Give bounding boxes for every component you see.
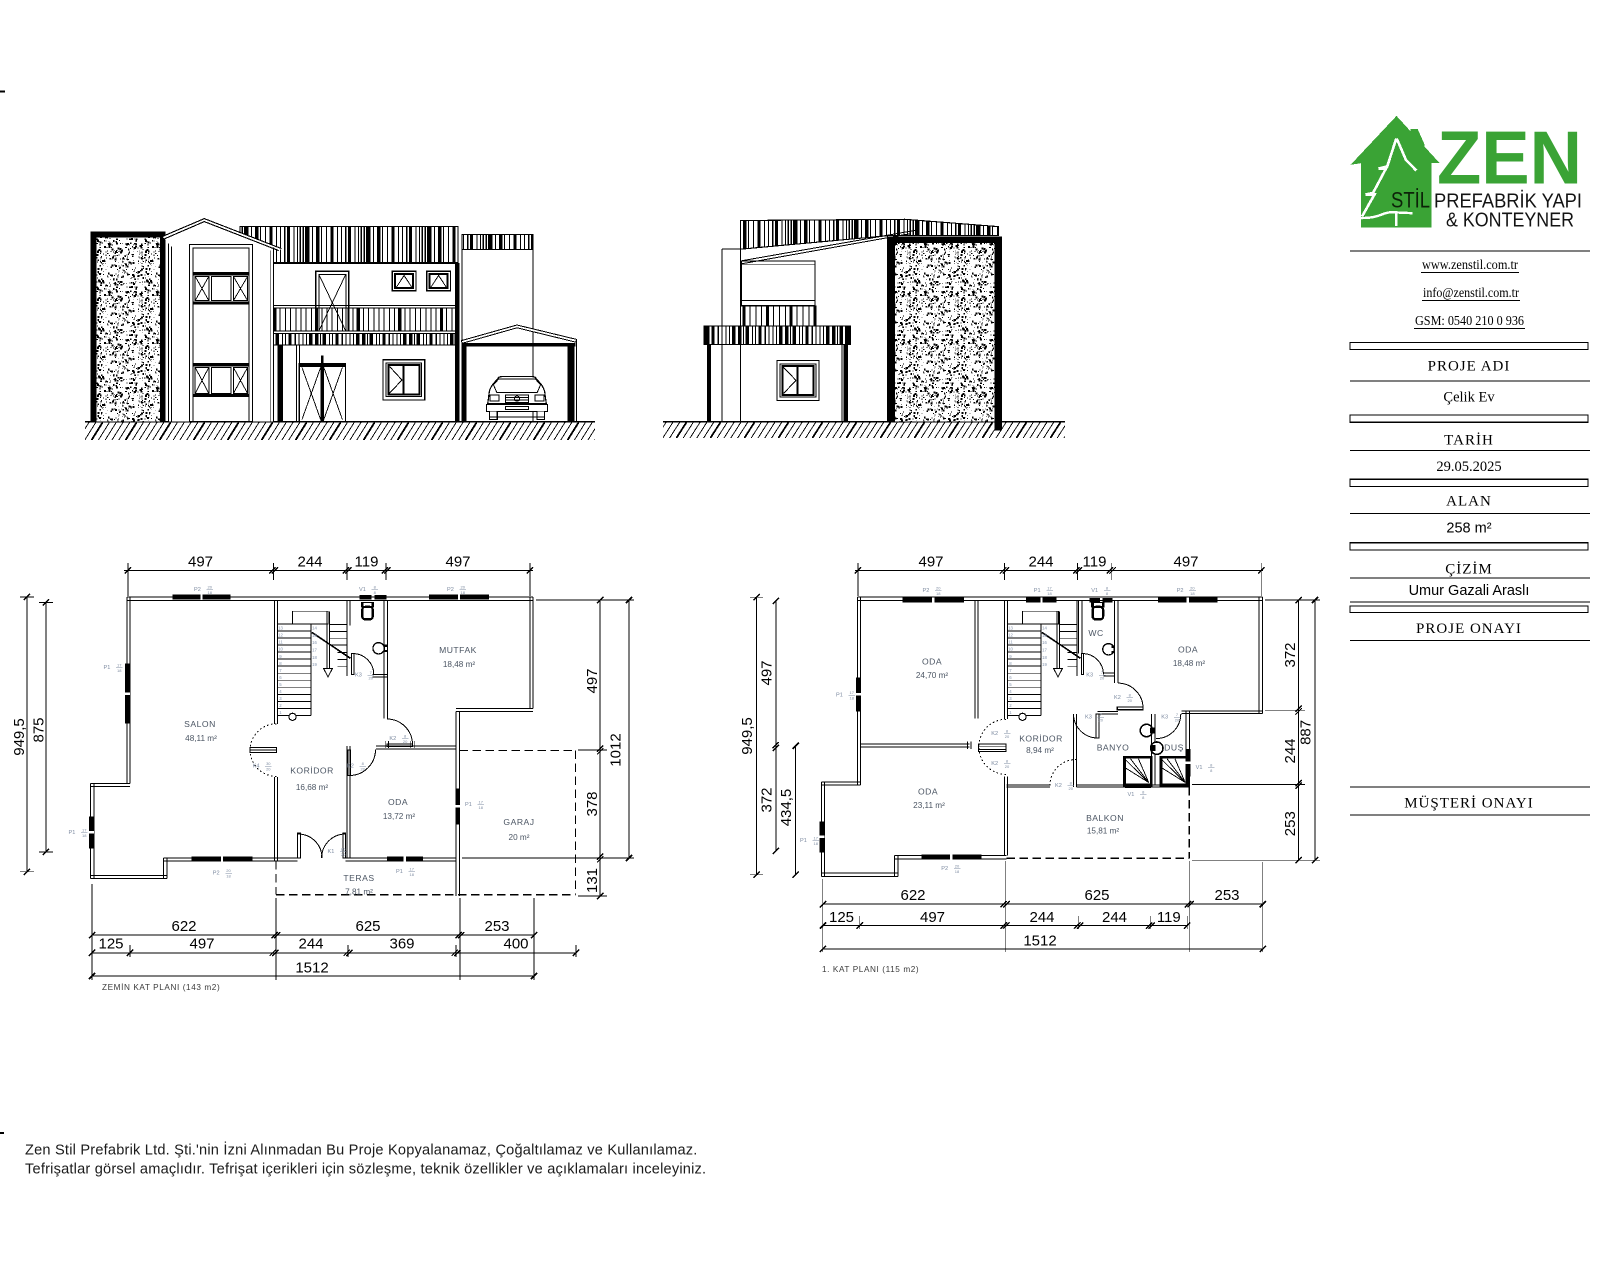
svg-text:119: 119 [1157, 909, 1181, 926]
svg-text:497: 497 [188, 554, 213, 571]
svg-text:STİL: STİL [1391, 188, 1430, 213]
svg-text:20: 20 [936, 586, 941, 591]
svg-text:497: 497 [920, 909, 945, 926]
svg-text:BALKON: BALKON [1086, 813, 1124, 823]
svg-text:17: 17 [849, 690, 854, 695]
svg-text:15: 15 [1042, 633, 1047, 638]
svg-text:17: 17 [1042, 648, 1047, 653]
svg-text:17: 17 [478, 800, 483, 805]
svg-text:WC: WC [1088, 628, 1103, 638]
svg-text:14: 14 [1042, 626, 1047, 631]
svg-text:20: 20 [266, 767, 271, 772]
svg-text:17: 17 [1047, 586, 1052, 591]
svg-text:GSM: 0540 210 0 936: GSM: 0540 210 0 936 [1415, 314, 1524, 329]
svg-text:3: 3 [1009, 696, 1012, 701]
svg-text:2: 2 [1009, 703, 1012, 708]
svg-text:P1: P1 [69, 830, 76, 836]
svg-text:20: 20 [1098, 718, 1103, 723]
svg-text:DUŞ: DUŞ [1164, 743, 1184, 753]
svg-text:K3: K3 [1085, 715, 1092, 721]
svg-text:P1: P1 [836, 693, 843, 699]
svg-text:1012: 1012 [608, 733, 625, 766]
svg-text:10: 10 [1008, 647, 1013, 652]
svg-text:P2: P2 [447, 587, 454, 593]
svg-text:2: 2 [279, 703, 282, 708]
svg-text:119: 119 [355, 554, 379, 571]
svg-text:7,81 m²: 7,81 m² [345, 888, 373, 897]
svg-text:125: 125 [829, 909, 854, 926]
svg-text:244: 244 [1028, 554, 1053, 571]
svg-text:info@zenstil.com.tr: info@zenstil.com.tr [1423, 286, 1519, 301]
svg-text:20: 20 [1068, 786, 1073, 791]
svg-text:17: 17 [82, 828, 87, 833]
svg-text:20: 20 [368, 676, 373, 681]
svg-text:18: 18 [955, 869, 960, 874]
svg-text:497: 497 [584, 668, 601, 693]
svg-text:8: 8 [279, 661, 282, 666]
svg-text:& KONTEYNER: & KONTEYNER [1446, 210, 1574, 232]
svg-text:18,48 m²: 18,48 m² [1173, 659, 1206, 668]
svg-text:V1: V1 [359, 587, 366, 593]
svg-text:29.05.2025: 29.05.2025 [1436, 459, 1501, 475]
svg-text:6: 6 [279, 675, 282, 680]
svg-text:258 m²: 258 m² [1446, 521, 1491, 537]
svg-text:16: 16 [312, 640, 317, 645]
svg-text:K2: K2 [1114, 695, 1121, 701]
svg-text:K3: K3 [355, 673, 362, 679]
svg-text:7: 7 [1009, 668, 1012, 673]
svg-text:20: 20 [226, 868, 231, 873]
svg-text:5: 5 [1009, 682, 1012, 687]
svg-text:1512: 1512 [295, 960, 328, 977]
svg-text:20: 20 [341, 852, 346, 857]
svg-text:131: 131 [584, 868, 601, 893]
svg-text:7: 7 [279, 668, 282, 673]
svg-text:MUTFAK: MUTFAK [439, 645, 477, 655]
svg-text:20: 20 [955, 864, 960, 869]
svg-text:4: 4 [279, 689, 282, 694]
svg-text:18: 18 [82, 833, 87, 838]
svg-text:8: 8 [1006, 759, 1009, 764]
svg-text:20: 20 [1005, 734, 1010, 739]
svg-text:KORİDOR: KORİDOR [290, 766, 334, 776]
svg-text:253: 253 [1214, 887, 1239, 904]
svg-text:16,68 m²: 16,68 m² [296, 783, 329, 792]
svg-text:P1: P1 [104, 665, 111, 671]
svg-text:5: 5 [279, 682, 282, 687]
svg-text:8: 8 [362, 761, 365, 766]
svg-text:13: 13 [278, 626, 283, 631]
svg-text:20: 20 [1175, 718, 1180, 723]
svg-text:372: 372 [758, 787, 775, 812]
svg-text:12: 12 [1008, 633, 1013, 638]
svg-text:1512: 1512 [1023, 933, 1056, 950]
svg-text:20: 20 [403, 739, 408, 744]
svg-text:TERAS: TERAS [343, 873, 374, 883]
svg-text:19: 19 [312, 662, 317, 667]
svg-text:P2: P2 [923, 588, 930, 594]
svg-text:11: 11 [1008, 640, 1013, 645]
svg-text:P2: P2 [1177, 588, 1184, 594]
svg-text:18: 18 [813, 841, 818, 846]
svg-text:4: 4 [1009, 689, 1012, 694]
svg-text:253: 253 [1282, 811, 1299, 836]
svg-text:ZEN: ZEN [1437, 116, 1582, 200]
svg-text:8: 8 [1142, 790, 1145, 795]
svg-text:625: 625 [1084, 887, 1109, 904]
svg-text:6: 6 [1009, 675, 1012, 680]
svg-text:125: 125 [98, 936, 123, 953]
svg-text:K1: K1 [328, 849, 335, 855]
svg-text:Zen Stil Prefabrik Ltd. Şti.'n: Zen Stil Prefabrik Ltd. Şti.'nin İzni Al… [25, 1141, 698, 1159]
svg-text:20 m²: 20 m² [509, 833, 530, 842]
svg-text:8: 8 [1210, 763, 1213, 768]
svg-text:244: 244 [1102, 909, 1127, 926]
svg-text:1: 1 [1009, 710, 1012, 715]
svg-text:3: 3 [279, 696, 282, 701]
svg-text:11: 11 [278, 640, 283, 645]
svg-text:434,5: 434,5 [778, 789, 795, 827]
svg-text:8: 8 [1006, 729, 1009, 734]
svg-text:Tefrişatlar görsel amaçlıdır.: Tefrişatlar görsel amaçlıdır. Tefrişat i… [25, 1162, 706, 1178]
svg-text:875: 875 [30, 717, 47, 742]
svg-text:244: 244 [297, 554, 322, 571]
svg-text:378: 378 [584, 791, 601, 816]
svg-text:K2: K2 [347, 764, 354, 770]
svg-text:K3: K3 [1161, 715, 1168, 721]
svg-text:www.zenstil.com.tr: www.zenstil.com.tr [1422, 258, 1518, 273]
svg-text:8: 8 [1106, 586, 1109, 591]
svg-text:20: 20 [460, 585, 465, 590]
svg-text:18: 18 [460, 590, 465, 595]
svg-text:V1: V1 [1091, 588, 1098, 594]
svg-text:18: 18 [226, 874, 231, 879]
svg-text:18: 18 [117, 668, 122, 673]
svg-text:K2: K2 [991, 731, 998, 737]
svg-text:20: 20 [1005, 764, 1010, 769]
svg-text:K3: K3 [1086, 673, 1093, 679]
svg-text:17: 17 [409, 867, 414, 872]
svg-text:ODA: ODA [388, 797, 408, 807]
svg-text:7: 7 [370, 670, 373, 675]
svg-text:949,5: 949,5 [11, 718, 28, 756]
svg-text:13: 13 [1008, 626, 1013, 631]
svg-text:7: 7 [1100, 712, 1103, 717]
svg-text:P2: P2 [213, 871, 220, 877]
svg-text:16: 16 [1042, 640, 1047, 645]
svg-text:8: 8 [404, 734, 407, 739]
svg-text:18: 18 [207, 590, 212, 595]
svg-text:GARAJ: GARAJ [503, 817, 534, 827]
svg-text:1. KAT PLANI (115 m2): 1. KAT PLANI (115 m2) [822, 965, 919, 974]
svg-text:K4: K4 [253, 764, 260, 770]
svg-text:400: 400 [503, 936, 528, 953]
svg-text:P1: P1 [465, 802, 472, 808]
svg-text:17: 17 [312, 648, 317, 653]
svg-text:Çelik Ev: Çelik Ev [1443, 390, 1495, 406]
svg-text:17: 17 [117, 663, 122, 668]
svg-text:119: 119 [1083, 554, 1107, 571]
svg-text:949,5: 949,5 [739, 717, 756, 755]
svg-text:24,70 m²: 24,70 m² [916, 671, 949, 680]
svg-text:19: 19 [1042, 662, 1047, 667]
svg-text:MÜŞTERİ ONAYI: MÜŞTERİ ONAYI [1404, 795, 1534, 812]
svg-text:17: 17 [813, 836, 818, 841]
svg-text:8: 8 [1129, 693, 1132, 698]
svg-text:18: 18 [312, 655, 317, 660]
svg-text:253: 253 [484, 918, 509, 935]
svg-text:V1: V1 [1196, 765, 1203, 771]
svg-text:244: 244 [1282, 738, 1299, 763]
svg-text:8: 8 [1070, 781, 1073, 786]
svg-text:PROJE ADI: PROJE ADI [1428, 359, 1511, 375]
svg-text:9: 9 [279, 654, 282, 659]
svg-text:244: 244 [298, 936, 323, 953]
svg-text:ODA: ODA [1178, 645, 1198, 655]
svg-text:18: 18 [849, 696, 854, 701]
svg-text:497: 497 [1173, 554, 1198, 571]
svg-text:8: 8 [1210, 768, 1213, 773]
svg-text:K2: K2 [389, 736, 396, 742]
svg-text:20: 20 [360, 767, 365, 772]
svg-text:P2: P2 [194, 587, 201, 593]
svg-text:18: 18 [1047, 591, 1052, 596]
svg-text:8: 8 [374, 585, 377, 590]
svg-text:8: 8 [1106, 591, 1109, 596]
svg-text:P1: P1 [1034, 588, 1041, 594]
svg-text:P1: P1 [396, 869, 403, 875]
svg-text:18: 18 [1190, 591, 1195, 596]
svg-text:ALAN: ALAN [1446, 494, 1492, 510]
svg-text:622: 622 [171, 918, 196, 935]
svg-text:KORİDOR: KORİDOR [1019, 734, 1063, 744]
svg-text:497: 497 [918, 554, 943, 571]
svg-text:Umur Gazali Araslı: Umur Gazali Araslı [1409, 583, 1530, 599]
svg-text:PROJE ONAYI: PROJE ONAYI [1416, 621, 1522, 637]
svg-text:ZEMİN KAT PLANI (143 m2): ZEMİN KAT PLANI (143 m2) [102, 982, 220, 992]
svg-text:ÇİZİM: ÇİZİM [1445, 562, 1493, 578]
svg-text:8: 8 [374, 590, 377, 595]
svg-text:V1: V1 [1128, 792, 1135, 798]
svg-text:23,11 m²: 23,11 m² [913, 801, 945, 810]
svg-text:625: 625 [355, 918, 380, 935]
svg-text:20: 20 [207, 585, 212, 590]
svg-text:1: 1 [279, 710, 282, 715]
svg-text:30: 30 [266, 761, 271, 766]
svg-text:497: 497 [445, 554, 470, 571]
svg-text:80: 80 [341, 847, 346, 852]
svg-text:P1: P1 [800, 838, 807, 844]
svg-text:18: 18 [1042, 655, 1047, 660]
svg-text:8: 8 [1009, 661, 1012, 666]
svg-text:8: 8 [1142, 795, 1145, 800]
svg-text:18,48 m²: 18,48 m² [443, 660, 476, 669]
svg-text:20: 20 [1127, 698, 1132, 703]
svg-text:14: 14 [312, 626, 317, 631]
svg-text:K2: K2 [991, 761, 998, 767]
svg-text:P2: P2 [941, 866, 948, 872]
svg-text:18: 18 [478, 805, 483, 810]
svg-text:ODA: ODA [918, 787, 938, 797]
svg-text:9: 9 [1009, 654, 1012, 659]
svg-text:15: 15 [312, 633, 317, 638]
svg-text:15,81 m²: 15,81 m² [1087, 827, 1120, 836]
svg-text:244: 244 [1029, 909, 1054, 926]
svg-text:7: 7 [1176, 712, 1179, 717]
svg-text:ODA: ODA [922, 657, 942, 667]
svg-text:13,72 m²: 13,72 m² [383, 812, 416, 821]
svg-text:497: 497 [189, 936, 214, 953]
svg-text:372: 372 [1282, 642, 1299, 667]
svg-text:497: 497 [758, 660, 775, 685]
svg-text:622: 622 [900, 887, 925, 904]
svg-text:BANYO: BANYO [1097, 743, 1130, 753]
svg-text:48,11 m²: 48,11 m² [185, 734, 217, 743]
svg-text:20: 20 [1100, 676, 1105, 681]
svg-text:10: 10 [278, 647, 283, 652]
svg-text:12: 12 [278, 633, 283, 638]
svg-text:K2: K2 [1055, 783, 1062, 789]
svg-text:8,94 m²: 8,94 m² [1026, 746, 1054, 755]
svg-text:SALON: SALON [184, 719, 216, 729]
svg-text:887: 887 [1298, 720, 1315, 745]
svg-text:20: 20 [1190, 586, 1195, 591]
svg-text:369: 369 [389, 936, 414, 953]
svg-text:18: 18 [936, 591, 941, 596]
svg-text:TARİH: TARİH [1444, 433, 1494, 449]
svg-text:18: 18 [409, 872, 414, 877]
